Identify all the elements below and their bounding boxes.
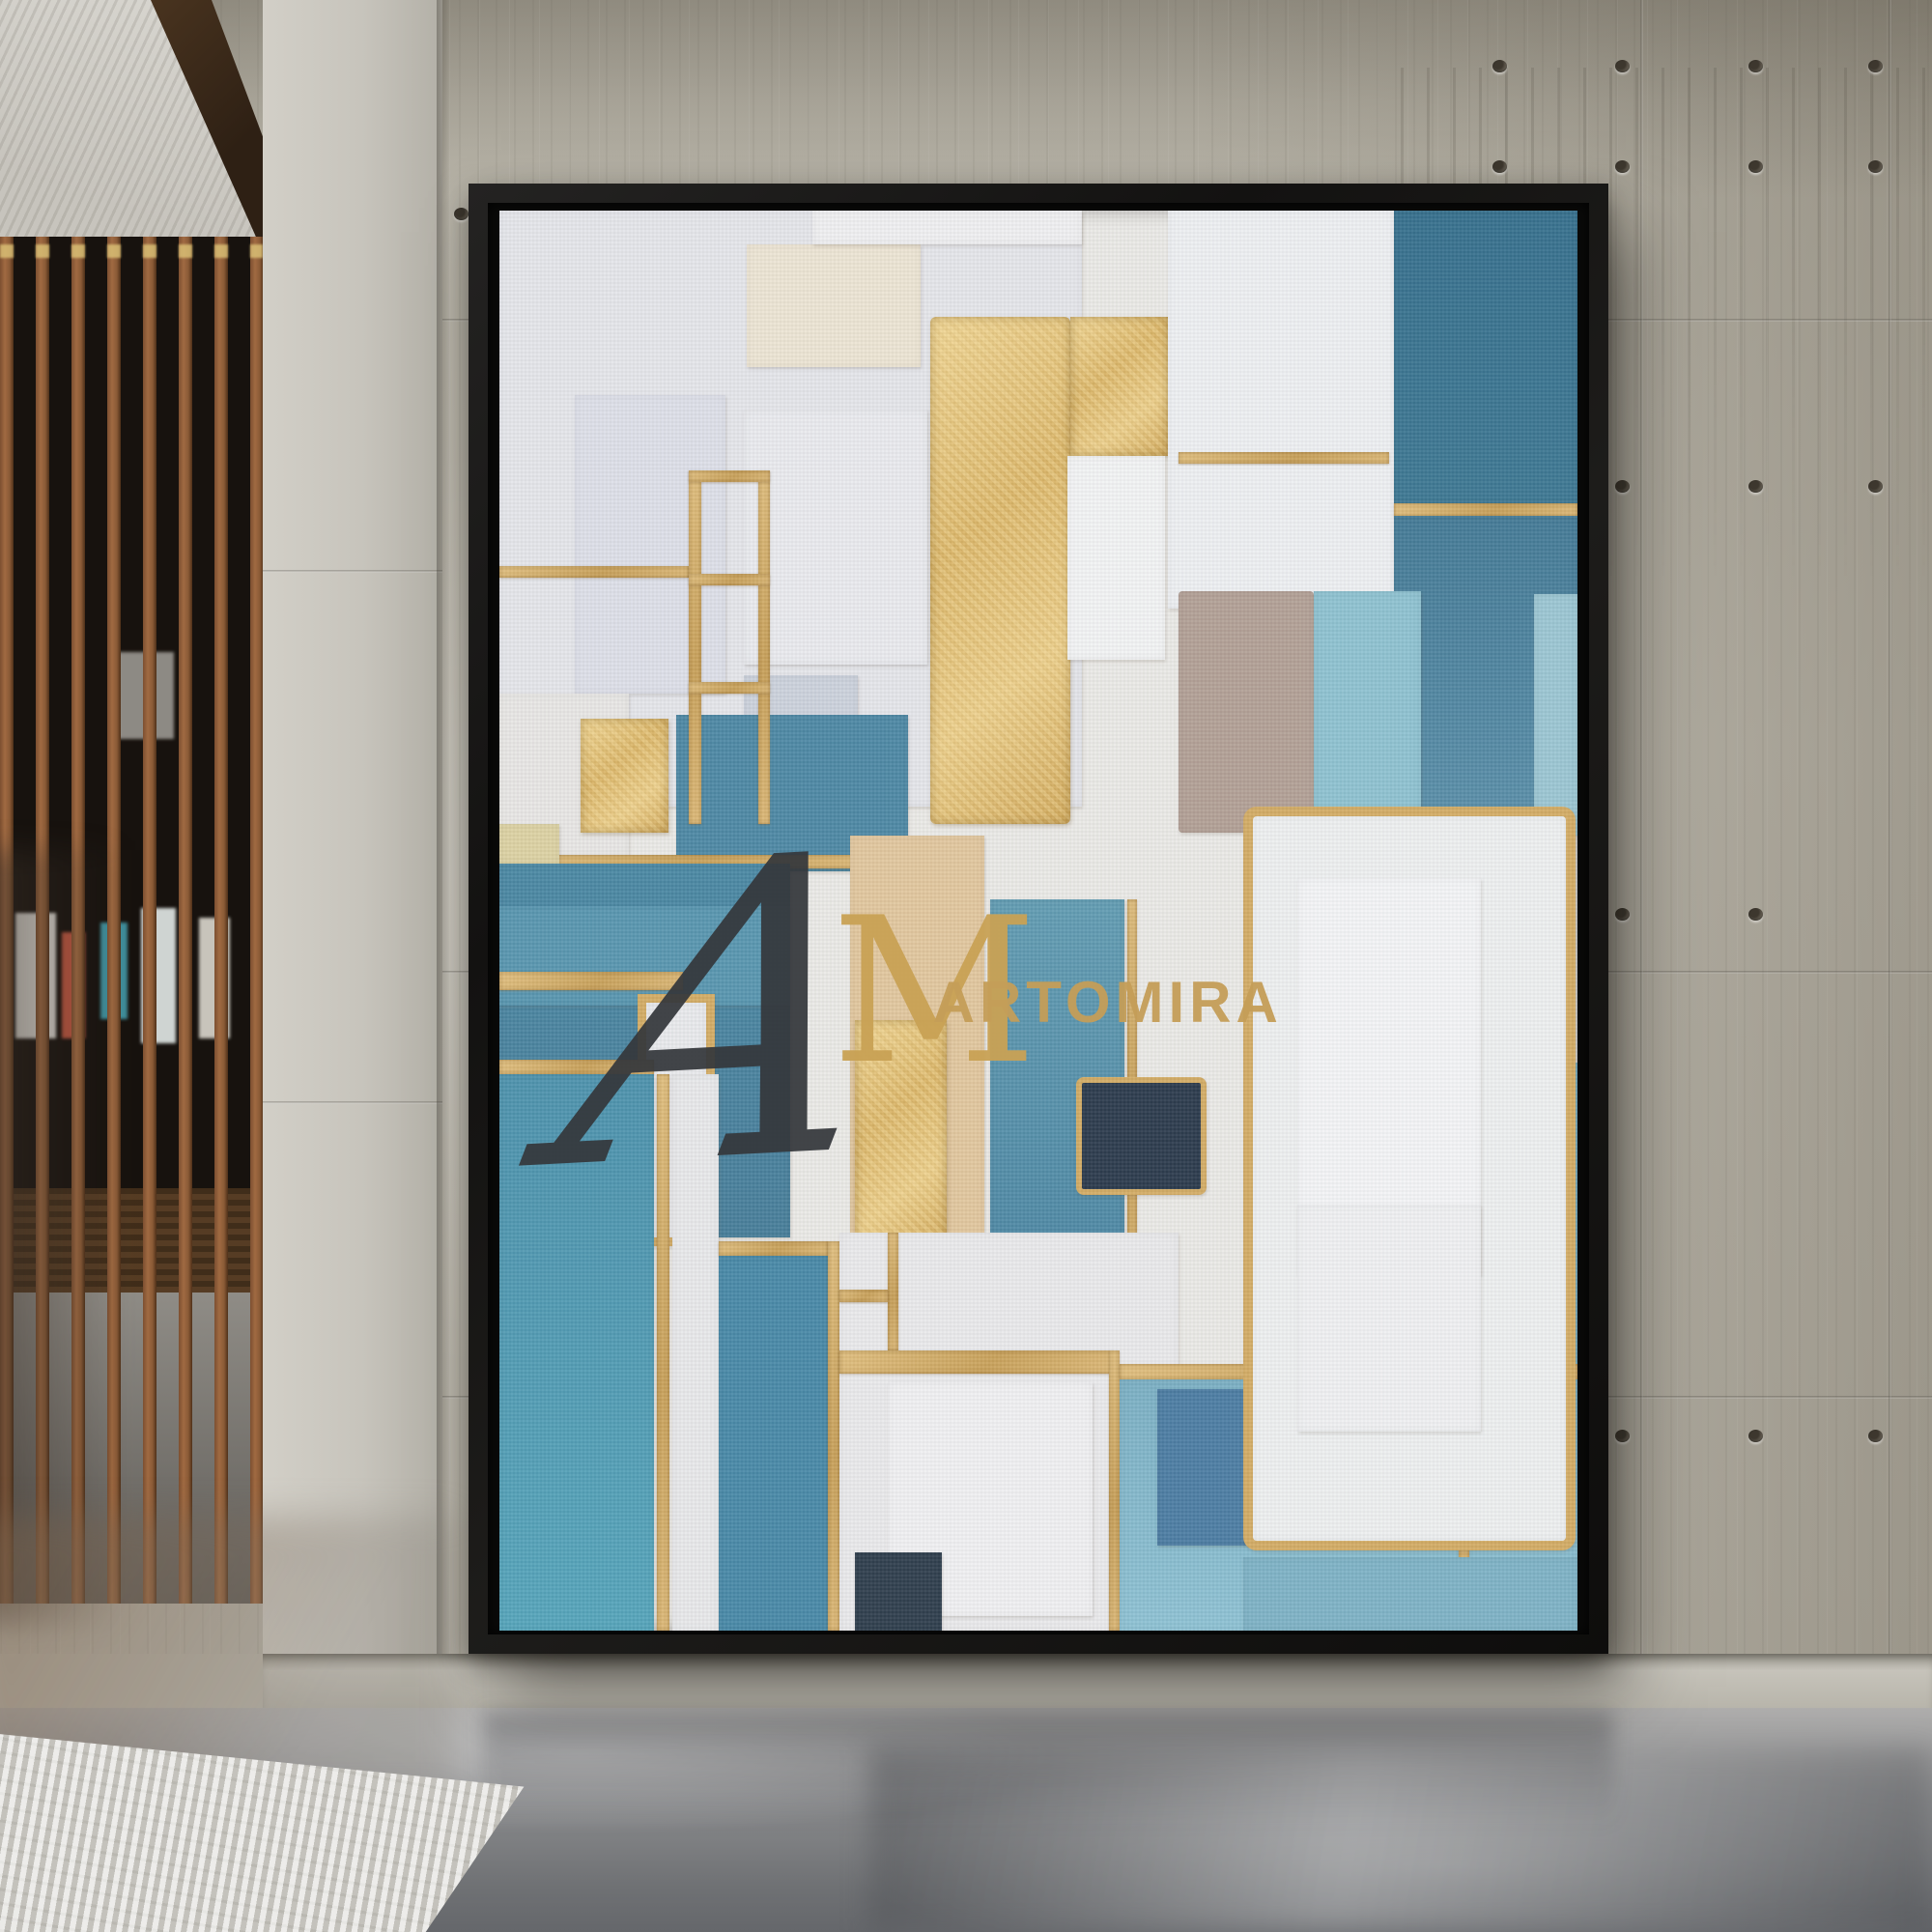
painting-canvas: A M ARTOMIRA xyxy=(499,211,1577,1631)
paint-block xyxy=(719,1241,829,1256)
paint-block xyxy=(1157,1389,1249,1546)
paint-block xyxy=(499,566,689,578)
slat-brass-fittings xyxy=(0,244,263,258)
paint-block xyxy=(855,1020,947,1247)
foreground-blur-left xyxy=(0,850,126,1623)
painting-floor-reflection xyxy=(483,1712,1613,1828)
paint-block xyxy=(657,1074,669,1631)
form-tie-hole xyxy=(1615,480,1630,493)
paint-block xyxy=(499,1060,654,1074)
product-photo-scene: A M ARTOMIRA xyxy=(0,0,1932,1932)
form-tie-hole xyxy=(454,208,469,220)
paint-block xyxy=(1067,456,1164,659)
paint-block xyxy=(1179,591,1314,833)
paint-block xyxy=(689,682,770,694)
form-tie-hole xyxy=(1492,60,1507,72)
paint-block xyxy=(499,824,559,864)
form-tie-hole xyxy=(1868,1430,1883,1442)
paint-block xyxy=(1243,1557,1577,1631)
wall-base-plinth xyxy=(263,1654,1932,1710)
paint-block xyxy=(499,972,683,990)
paint-block xyxy=(581,719,669,833)
paint-block xyxy=(758,470,770,824)
paint-block xyxy=(499,906,790,1006)
paint-block xyxy=(747,244,922,366)
paint-block xyxy=(1297,1205,1481,1432)
paint-block xyxy=(672,1074,719,1631)
paint-block xyxy=(689,470,770,482)
paint-block xyxy=(1394,211,1577,503)
paint-block xyxy=(1109,1350,1120,1631)
form-tie-hole xyxy=(1868,480,1883,493)
form-tie-hole xyxy=(1868,160,1883,173)
paint-block xyxy=(1179,452,1389,464)
framed-abstract-painting: A M ARTOMIRA xyxy=(469,184,1608,1654)
form-tie-hole xyxy=(1868,60,1883,72)
paint-block xyxy=(930,317,1070,824)
wall-seam-vertical xyxy=(1640,0,1643,1654)
paint-block xyxy=(575,395,725,694)
paint-block xyxy=(839,1350,1115,1374)
paint-block xyxy=(499,1074,654,1631)
wall-seam-vertical xyxy=(1889,0,1891,1654)
paint-block xyxy=(744,410,927,666)
paint-block xyxy=(828,1241,838,1631)
form-tie-hole xyxy=(1748,160,1763,173)
paint-block xyxy=(1168,211,1394,609)
paint-block xyxy=(1070,317,1167,456)
paint-block xyxy=(839,1290,888,1302)
paint-block xyxy=(1394,503,1577,517)
paint-block xyxy=(1534,594,1577,836)
column-joint xyxy=(263,1101,442,1104)
form-tie-hole xyxy=(1615,908,1630,921)
concrete-column xyxy=(263,0,442,1654)
form-tie-hole xyxy=(1748,60,1763,72)
form-tie-hole xyxy=(1615,60,1630,72)
form-tie-hole xyxy=(1615,160,1630,173)
paint-block xyxy=(689,574,770,585)
form-tie-hole xyxy=(1748,1430,1763,1442)
wall-corner-shadow xyxy=(437,0,450,1654)
paint-block xyxy=(719,1256,829,1631)
paint-block xyxy=(888,1233,898,1350)
form-tie-hole xyxy=(1615,1430,1630,1442)
paint-block xyxy=(855,1552,941,1631)
column-joint xyxy=(263,570,442,573)
paint-block xyxy=(689,470,700,824)
form-tie-hole xyxy=(1492,160,1507,173)
paint-block xyxy=(1076,1077,1207,1195)
form-tie-hole xyxy=(1748,908,1763,921)
form-tie-hole xyxy=(1748,480,1763,493)
paint-block xyxy=(812,211,1082,244)
